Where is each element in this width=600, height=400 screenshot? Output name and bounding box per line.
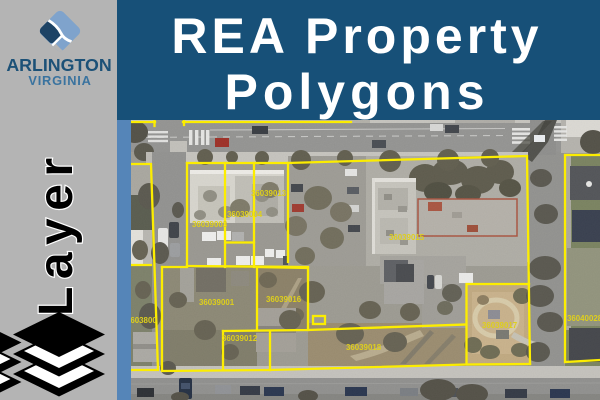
svg-text:Layer: Layer [30, 150, 83, 316]
svg-text:36039015: 36039015 [389, 233, 425, 242]
svg-text:36040028: 36040028 [567, 314, 600, 323]
svg-text:REA Property: REA Property [171, 8, 542, 64]
svg-text:36039001: 36039001 [199, 298, 235, 307]
svg-text:VIRGINIA: VIRGINIA [28, 73, 91, 88]
svg-text:36039012: 36039012 [222, 334, 258, 343]
svg-text:36039018: 36039018 [346, 343, 382, 352]
svg-text:36039013: 36039013 [251, 189, 287, 198]
svg-text:36039003: 36039003 [192, 220, 228, 229]
svg-text:36039017: 36039017 [482, 321, 518, 330]
svg-text:36039004: 36039004 [227, 210, 263, 219]
svg-text:36039016: 36039016 [266, 295, 302, 304]
svg-text:ARLINGTON: ARLINGTON [6, 55, 111, 75]
svg-text:Polygons: Polygons [224, 64, 489, 120]
